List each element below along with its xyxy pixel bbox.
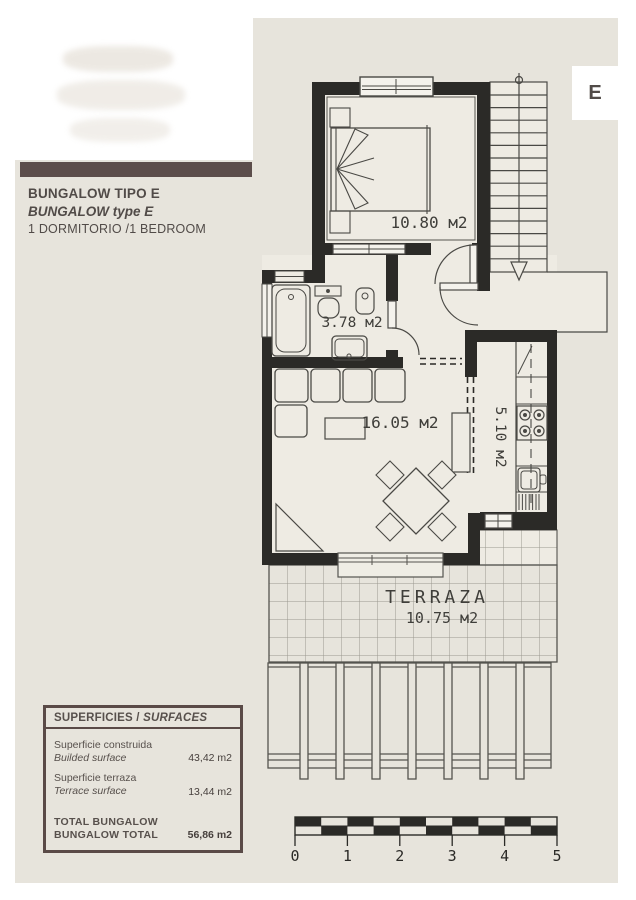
table-row: Superficie terraza Terrace surface 13,44… xyxy=(54,772,232,798)
bathroom-door-leaf xyxy=(388,301,396,328)
terrace-name-label: TERRAZA xyxy=(385,587,489,608)
watermark-logo xyxy=(57,80,185,110)
side-cabinet xyxy=(452,413,470,472)
logo-area xyxy=(15,18,253,160)
scale-label: 3 xyxy=(448,847,457,865)
scale-label: 1 xyxy=(343,847,352,865)
scale-label: 5 xyxy=(552,847,561,865)
bedroom-door-leaf xyxy=(470,245,477,285)
surfaces-header-en: SURFACES xyxy=(143,712,207,724)
surfaces-header-sep: / xyxy=(133,712,143,724)
row-value: 13,44 m2 xyxy=(188,786,232,798)
living-area-label: 16.05 м2 xyxy=(361,413,438,432)
unit-letter-box: E xyxy=(572,66,618,120)
entrance-door-leaf xyxy=(440,283,478,290)
total-label-en: BUNGALOW TOTAL xyxy=(54,829,158,842)
title-spanish: BUNGALOW TIPO E xyxy=(28,186,206,201)
bathroom-area-label: 3.78 м2 xyxy=(321,315,382,331)
table-total-row: TOTAL BUNGALOW BUNGALOW TOTAL 56,86 m2 xyxy=(54,816,232,842)
title-subtitle: 1 DORMITORIO /1 BEDROOM xyxy=(28,222,206,236)
title-block: BUNGALOW TIPO E BUNGALOW type E 1 DORMIT… xyxy=(28,186,206,236)
title-accent-bar xyxy=(20,162,252,177)
surfaces-table: SUPERFICIES / SURFACES Superficie constr… xyxy=(43,705,243,853)
surfaces-header-es: SUPERFICIES xyxy=(54,712,133,724)
scale-label: 2 xyxy=(395,847,404,865)
watermark-logo xyxy=(70,118,170,142)
sliding-door xyxy=(338,553,443,577)
scale-label: 4 xyxy=(500,847,509,865)
floor-plan-page: 0 1 2 3 4 5 10.80 м2 3.78 м2 16.05 м2 5.… xyxy=(0,0,636,900)
kitchen-area-label: 5.10 м2 xyxy=(492,406,508,467)
pergola-structure xyxy=(268,663,551,779)
title-english: BUNGALOW type E xyxy=(28,204,206,219)
scale-label: 0 xyxy=(290,847,299,865)
terrace-area-label: 10.75 м2 xyxy=(406,609,478,627)
table-row: Superficie construida Builded surface 43… xyxy=(54,739,232,765)
surfaces-table-header: SUPERFICIES / SURFACES xyxy=(46,708,240,729)
row-value: 43,42 m2 xyxy=(188,752,232,764)
row-label-en: Builded surface xyxy=(54,752,152,765)
row-label-es: Superficie construida xyxy=(54,739,152,752)
watermark-logo xyxy=(63,46,173,72)
total-value: 56,86 m2 xyxy=(188,829,232,841)
row-label-es: Superficie terraza xyxy=(54,772,136,785)
row-label-en: Terrace surface xyxy=(54,785,136,798)
bedroom-area-label: 10.80 м2 xyxy=(390,213,467,232)
total-label-es: TOTAL BUNGALOW xyxy=(54,816,158,829)
scale-bar: 0 1 2 3 4 5 xyxy=(290,817,561,865)
unit-letter: E xyxy=(588,82,601,105)
